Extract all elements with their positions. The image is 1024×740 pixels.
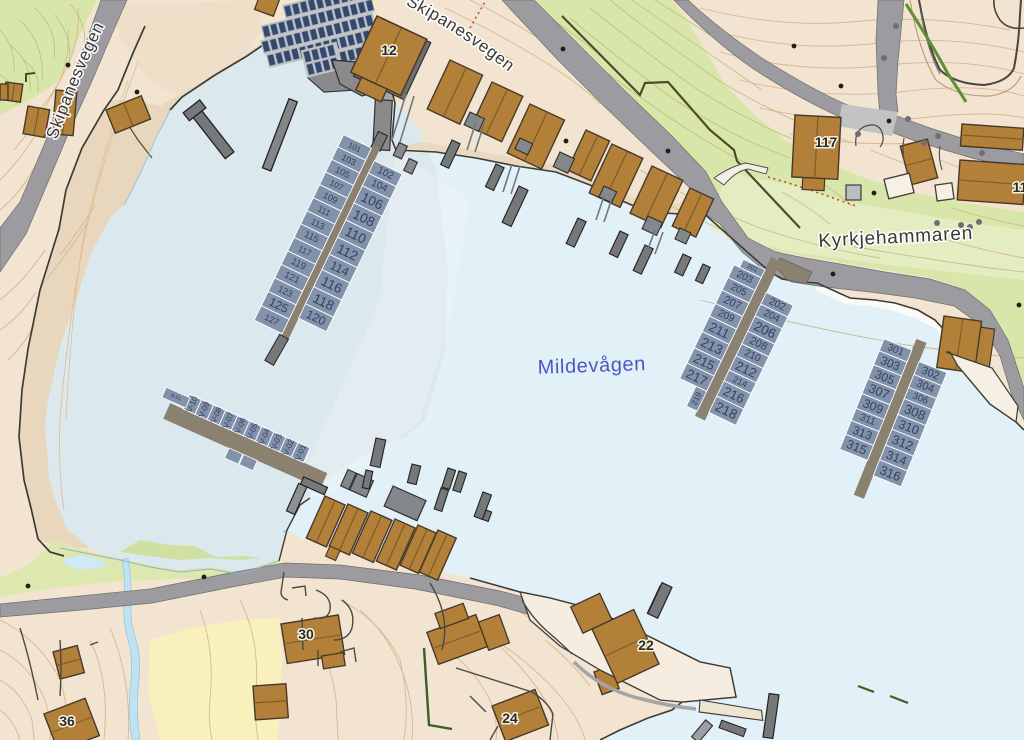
svg-text:Mildevågen: Mildevågen <box>537 353 646 379</box>
svg-text:22: 22 <box>638 637 654 653</box>
svg-text:117: 117 <box>815 134 838 150</box>
svg-text:36: 36 <box>59 713 75 729</box>
svg-text:12: 12 <box>381 42 397 58</box>
svg-text:11: 11 <box>1013 179 1024 195</box>
svg-text:30: 30 <box>298 626 314 642</box>
svg-text:24: 24 <box>502 710 518 726</box>
